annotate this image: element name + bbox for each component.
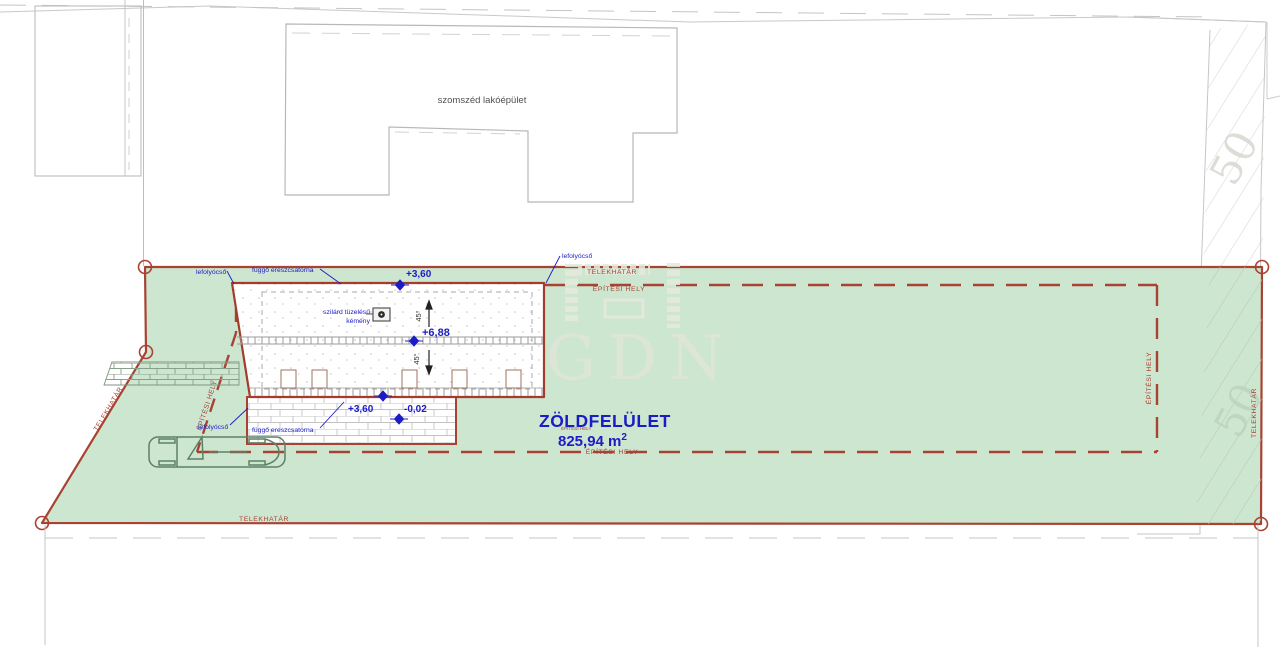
green-area-number: 825,94 m [558,433,621,450]
chimney-label-line2: kémény [346,318,370,325]
boundary-label-top: TELEKHATÁR [587,267,637,276]
chimney-label-line1: szilárd tüzelésű [323,309,370,316]
roof-pitch-lower: 45° [412,353,421,364]
roof-pitch-upper: 45° [414,310,423,321]
elevation-eave: +3,60 [406,269,432,280]
roof-ridge [237,337,543,344]
elevation-ground: -0,02 [404,404,427,415]
gutter-label-bottom: függő ereszcsatorna [252,427,314,434]
downpipe-label-top-right: lefolyócső [562,253,592,260]
site-plan-drawing: szomszéd lakóépület 50 50 ÉPÍTÉSI HELY É… [0,0,1280,647]
building-zone-label-small: ÉPÍTÉSI HELY [561,425,592,431]
building-zone-label-top: ÉPÍTÉSI HELY [593,284,645,293]
green-area-value: 825,94 m2 [558,432,627,450]
elevation-ridge: +6,88 [422,327,450,339]
lower-context-lines [45,525,1258,647]
neighbor-building-main: szomszéd lakóépület [285,24,677,202]
downpipe-label-bottom: lefolyócső [198,424,228,431]
green-area-title: ZÖLDFELÜLET [539,411,671,431]
neighbor-building-label: szomszéd lakóépület [438,95,527,106]
elevation-terrace: +3,60 [348,404,374,415]
downpipe-label-top-left: lefolyócső [196,269,226,276]
planned-building [232,283,544,397]
site-plan-canvas: szomszéd lakóépület 50 50 ÉPÍTÉSI HELY É… [0,0,1280,647]
watermark-text: GDN [546,321,736,394]
garden-wall [104,362,239,385]
gutter-label-top: függő ereszcsatorna [252,267,314,274]
plot-green-area: 50 [42,267,1273,524]
eaves-rafter-band [250,388,543,396]
building-zone-label-right: ÉPÍTÉSI HELY [1144,352,1153,404]
green-area-superscript: 2 [621,432,627,443]
boundary-label-bottom: TELEKHATÁR [239,514,289,523]
boundary-label-right: TELEKHATÁR [1249,388,1258,438]
